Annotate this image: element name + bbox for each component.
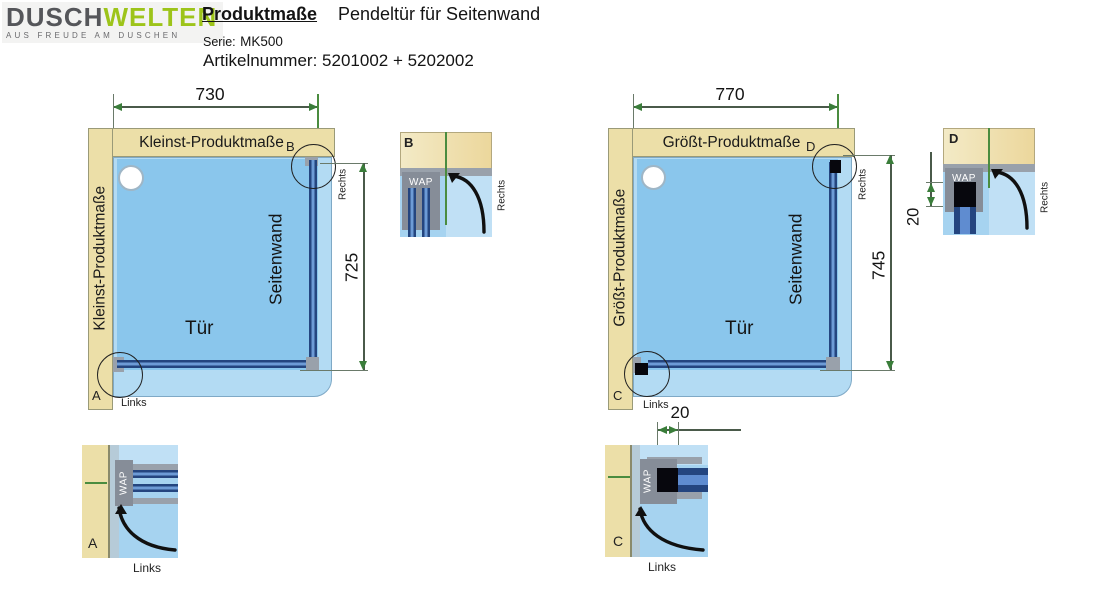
detail-circle-d <box>812 144 857 189</box>
detail-view-d: WAP D <box>943 128 1035 235</box>
corner-marker-d: D <box>806 139 815 154</box>
detail-c-centerline <box>608 476 630 478</box>
article-label: Artikelnummer: <box>203 51 317 70</box>
wall-left-label-groesst: Größt-Produktmaße <box>609 129 632 387</box>
detail-a-glass <box>133 484 178 492</box>
detail-d-glass <box>954 207 976 234</box>
door-label-groesst: Tür <box>725 318 754 340</box>
detail-d-centerline <box>988 128 990 188</box>
detail-b-glass <box>422 188 430 237</box>
detail-circle-c <box>624 351 670 397</box>
corner-profile-cap <box>306 357 319 371</box>
detail-a-centerline <box>85 482 107 484</box>
door-label-kleinst: Tür <box>185 318 214 340</box>
drain-circle <box>118 165 144 191</box>
sidewall-glass-kleinst <box>309 160 317 368</box>
detail-a-marker: A <box>88 535 97 551</box>
detail-d-gap-dim: 20 <box>904 200 924 234</box>
detail-view-a: WAP A <box>82 445 178 558</box>
door-swing-arrow-a <box>115 503 178 556</box>
sidewall-label-groesst: Seitenwand <box>784 203 808 315</box>
brand-tagline: AUS FREUDE AM DUSCHEN <box>6 31 217 40</box>
door-swing-arrow-c <box>635 505 708 555</box>
logo-part-dusch: DUSCH <box>6 2 103 32</box>
detail-circle-b <box>291 144 336 189</box>
article-value: 5201002 + 5202002 <box>322 51 474 70</box>
sidewall-glass-groesst <box>829 162 837 368</box>
detail-view-c: WAP C <box>605 445 708 557</box>
product-dimension-sheet: DUSCHWELTEN AUS FREUDE AM DUSCHEN Produk… <box>0 0 1116 592</box>
detail-b-centerline <box>445 132 447 225</box>
dim-line <box>363 163 365 370</box>
corner-marker-c: C <box>613 388 622 403</box>
dim-arrow <box>886 361 894 370</box>
brand-logo: DUSCHWELTEN AUS FREUDE AM DUSCHEN <box>2 2 223 43</box>
wap-label-a: WAP <box>115 460 133 506</box>
detail-d-marker: D <box>949 131 958 146</box>
detail-c-gap-square <box>657 468 678 492</box>
dim-height-kleinst: 725 <box>342 235 362 299</box>
dim-arrow <box>669 426 678 434</box>
wall-left-label-kleinst: Kleinst-Produktmaße <box>89 129 112 387</box>
series-label: Serie: <box>203 35 236 49</box>
corner-marker-a: A <box>92 388 101 403</box>
drain-circle <box>641 165 666 190</box>
wall-top-label-kleinst: Kleinst-Produktmaße <box>139 134 284 152</box>
series-row: Serie: MK500 <box>203 33 283 51</box>
rechts-label-kleinst: Rechts <box>337 160 349 208</box>
dim-line <box>890 155 892 370</box>
corner-marker-b: B <box>286 139 295 154</box>
wap-label-b: WAP <box>409 177 433 188</box>
sidewall-label-kleinst: Seitenwand <box>264 203 288 315</box>
wap-label-c: WAP <box>640 459 656 504</box>
dim-arrow <box>359 163 367 172</box>
dim-arrow <box>113 103 122 111</box>
dim-arrow <box>927 183 935 192</box>
dim-height-groesst: 745 <box>869 233 889 297</box>
dim-arrow <box>927 197 935 206</box>
series-value: MK500 <box>240 34 283 49</box>
dim-arrow <box>658 426 667 434</box>
detail-a-glass <box>133 470 178 478</box>
detail-d-gap-square <box>954 182 976 207</box>
dim-width-kleinst: 730 <box>160 84 260 105</box>
links-label-kleinst: Links <box>121 397 147 409</box>
dim-arrow <box>633 103 642 111</box>
detail-c-side-label: Links <box>648 560 676 574</box>
brand-logo-wordmark: DUSCHWELTEN <box>6 4 217 30</box>
corner-profile-cap <box>826 357 840 371</box>
detail-a-wap-profile: WAP <box>115 460 133 506</box>
door-swing-arrow-b <box>448 172 490 236</box>
detail-c-gap-dim: 20 <box>660 403 700 423</box>
page-subtitle: Pendeltür für Seitenwand <box>338 4 540 25</box>
door-glass-kleinst <box>117 360 317 368</box>
extension-line <box>820 370 895 371</box>
detail-b-side-label: Rechts <box>496 170 508 220</box>
dim-width-groesst: 770 <box>680 84 780 105</box>
detail-circle-a <box>97 352 143 398</box>
dim-line <box>633 106 838 108</box>
detail-c-marker: C <box>613 533 623 549</box>
page-title: Produktmaße <box>202 4 317 25</box>
detail-view-b: WAP B <box>400 132 492 237</box>
dim-arrow <box>886 155 894 164</box>
detail-b-glass <box>408 188 416 237</box>
dim-line <box>113 106 318 108</box>
dim-arrow <box>359 361 367 370</box>
rechts-label-groesst: Rechts <box>857 160 869 208</box>
detail-a-side-label: Links <box>133 561 161 575</box>
detail-b-marker: B <box>404 135 413 150</box>
logo-part-welten: WELTEN <box>103 2 217 32</box>
detail-d-side-label: Rechts <box>1039 172 1051 222</box>
detail-c-glass <box>678 468 708 492</box>
extension-line <box>300 370 368 371</box>
door-swing-arrow-d <box>991 168 1033 232</box>
article-row: Artikelnummer: 5201002 + 5202002 <box>203 51 474 71</box>
wall-top-label-groesst: Größt-Produktmaße <box>663 134 801 152</box>
door-glass-groesst <box>648 360 830 368</box>
